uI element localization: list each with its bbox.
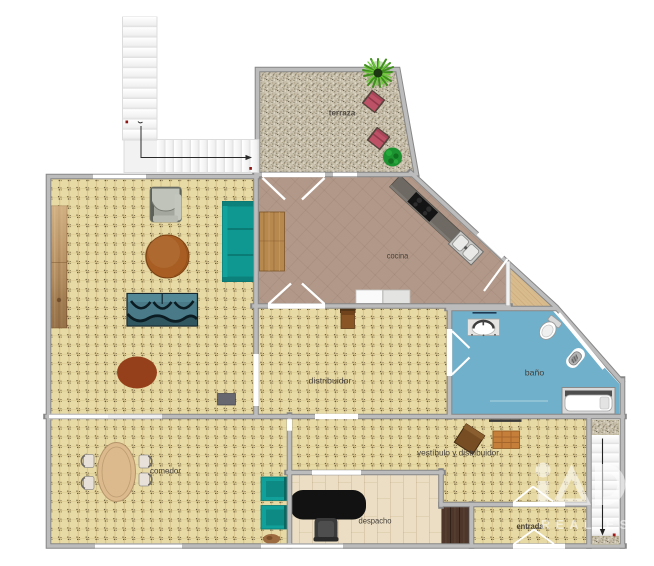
svg-text:cocina: cocina (387, 252, 409, 261)
svg-text:terraza: terraza (329, 109, 356, 118)
svg-text:REAL ESTATE: REAL ESTATE (541, 518, 654, 532)
svg-text:despacho: despacho (359, 517, 392, 526)
svg-text:baño: baño (525, 369, 545, 378)
svg-text:comedor: comedor (150, 467, 181, 476)
svg-text:vestíbulo y distribuidor: vestíbulo y distribuidor (417, 449, 499, 458)
svg-text:entrada: entrada (517, 522, 544, 531)
svg-text:distribuidor: distribuidor (309, 377, 352, 386)
